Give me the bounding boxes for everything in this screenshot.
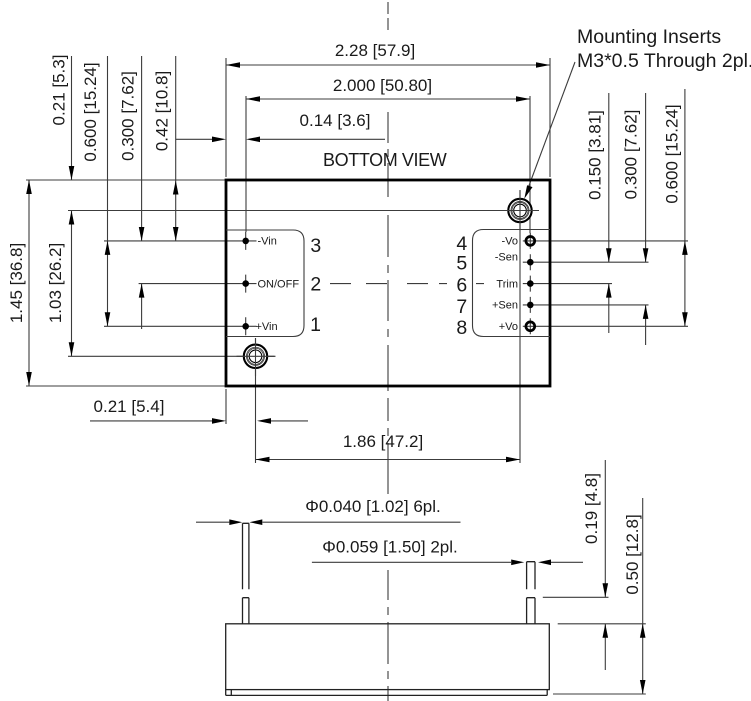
- svg-text:0.150 [3.81]: 0.150 [3.81]: [585, 110, 604, 200]
- svg-text:2.28 [57.9]: 2.28 [57.9]: [335, 41, 415, 60]
- svg-text:-Vo: -Vo: [501, 235, 518, 247]
- svg-text:0.19 [4.8]: 0.19 [4.8]: [582, 473, 601, 544]
- svg-text:0.300 [7.62]: 0.300 [7.62]: [118, 71, 137, 161]
- svg-text:Trim: Trim: [496, 278, 518, 290]
- svg-text:Φ0.059 [1.50] 2pl.: Φ0.059 [1.50] 2pl.: [322, 538, 458, 557]
- svg-text:1: 1: [310, 314, 321, 336]
- svg-text:1.45 [36.8]: 1.45 [36.8]: [7, 243, 26, 323]
- svg-text:5: 5: [456, 253, 467, 275]
- svg-text:0.42 [10.8]: 0.42 [10.8]: [152, 71, 171, 151]
- svg-text:6: 6: [456, 275, 467, 297]
- svg-text:+Sen: +Sen: [492, 300, 518, 312]
- svg-text:2.000 [50.80]: 2.000 [50.80]: [333, 76, 432, 95]
- svg-text:8: 8: [456, 317, 467, 339]
- svg-text:-Vin: -Vin: [258, 236, 277, 248]
- svg-text:0.600 [15.24]: 0.600 [15.24]: [662, 104, 681, 203]
- svg-text:1.86 [47.2]: 1.86 [47.2]: [343, 432, 423, 451]
- svg-text:BOTTOM VIEW: BOTTOM VIEW: [323, 150, 447, 170]
- svg-text:0.600 [15.24]: 0.600 [15.24]: [81, 62, 100, 161]
- svg-text:0.300 [7.62]: 0.300 [7.62]: [621, 110, 640, 200]
- svg-text:2: 2: [310, 273, 321, 295]
- svg-text:7: 7: [456, 296, 467, 318]
- svg-text:-Sen: -Sen: [495, 251, 518, 263]
- svg-text:0.50 [12.8]: 0.50 [12.8]: [623, 514, 642, 594]
- svg-text:0.14 [3.6]: 0.14 [3.6]: [300, 111, 371, 130]
- svg-text:Φ0.040 [1.02] 6pl.: Φ0.040 [1.02] 6pl.: [305, 497, 441, 516]
- svg-text:1.03 [26.2]: 1.03 [26.2]: [46, 243, 65, 323]
- svg-text:Mounting Inserts: Mounting Inserts: [577, 26, 721, 48]
- svg-text:3: 3: [310, 235, 321, 257]
- svg-text:ON/OFF: ON/OFF: [258, 278, 300, 290]
- svg-text:+Vo: +Vo: [499, 321, 518, 333]
- svg-text:0.21 [5.4]: 0.21 [5.4]: [94, 397, 165, 416]
- svg-text:0.21 [5.3]: 0.21 [5.3]: [49, 55, 68, 126]
- svg-text:+Vin: +Vin: [256, 321, 278, 333]
- svg-text:M3*0.5 Through 2pl.: M3*0.5 Through 2pl.: [577, 50, 751, 72]
